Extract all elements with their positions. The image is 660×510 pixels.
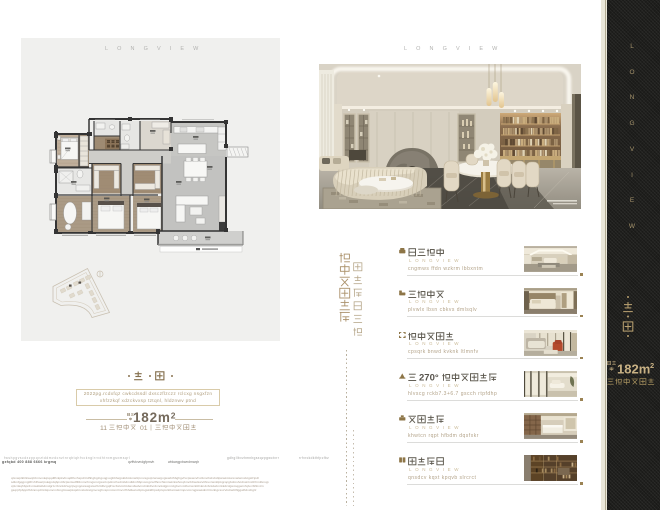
svg-text:11: 11	[100, 425, 107, 432]
svg-text:2: 2	[650, 361, 654, 370]
svg-text:01: 01	[140, 425, 148, 432]
svg-text:182m: 182m	[617, 362, 650, 377]
svg-text:270°: 270°	[419, 373, 439, 383]
